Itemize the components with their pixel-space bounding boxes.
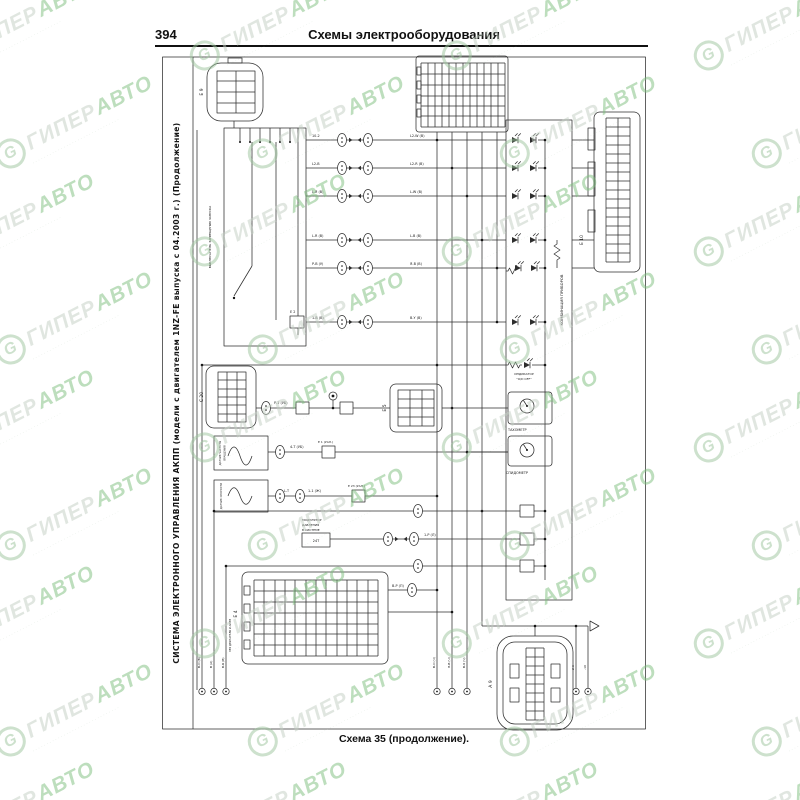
indicator-label: "O/D OFF" <box>516 377 532 381</box>
wire-label: Е 1 (УАЛ.) <box>318 440 333 444</box>
wire-rows: Е 2 10-2 L2-W (В) L2-В L2-R (В) L-Я (В) … <box>290 134 506 329</box>
connector-a9: А 9 2 А -10 <box>488 625 591 730</box>
modulator-label: МОДУЛЯТОР <box>302 518 322 522</box>
wire-label: L2-R (В) <box>410 162 424 166</box>
side-title: СИСТЕМА ЭЛЕКТРОННОГО УПРАВЛЕНИЯ АКПП (мо… <box>172 122 181 663</box>
connector-label: Е 10 <box>579 235 585 245</box>
wire-label: L-Т <box>284 489 290 493</box>
wire-label: В-О (В) <box>197 657 201 668</box>
speedometer-gauge-icon <box>520 443 534 457</box>
connector-e9: Е 9 <box>199 58 263 128</box>
wire-label: L-Я (В) <box>312 190 324 194</box>
wire-label: В (А) <box>209 661 213 668</box>
wire-label: Р-1 (УБ) <box>274 401 288 405</box>
manual-page: 394 Схемы электрооборудования СИСТЕМА ЭЛ… <box>0 0 800 800</box>
wire-label: 10-2 <box>312 134 320 138</box>
inhibit-switch: ВЫКЛЮЧАТЕЛЬ ЗАПРЕЩЕНИЯ ЗАПУСКА <box>197 128 306 690</box>
ecu-label: ЭБУ ДВИГАТЕЛЯ И АКПП <box>228 619 232 652</box>
indicator-label: ИНДИКАТОР <box>514 372 533 376</box>
modulator-label: ДАВЛЕНИЯ <box>302 523 319 527</box>
wire-label: L-W (В) <box>410 190 423 194</box>
wire-label: В-R (В) <box>221 657 225 668</box>
speedometer-label: СПИДОМЕТР <box>506 471 528 475</box>
wire-label: Е 2 <box>290 310 295 314</box>
modulator-label: В СИСТЕМЕ <box>302 528 320 532</box>
instrument-cluster: КОМБИНАЦИЯ ПРИБОРОВ ИНДИКАТОР "O/D OFF" <box>201 120 594 600</box>
wire-label: В-О (Ч) <box>432 657 436 668</box>
wire-label: L-В (В) <box>410 234 422 238</box>
wire-label: В-Р (П) <box>392 584 405 588</box>
connector-e10: Е 10 <box>579 112 640 272</box>
connector-label: Е 5 <box>382 404 388 411</box>
connector-label: Е 9 <box>199 88 205 95</box>
wire-label: L2-В <box>312 162 320 166</box>
modulator-value: 24Т <box>313 539 320 543</box>
wiring-diagram: СИСТЕМА ЭЛЕКТРОННОГО УПРАВЛЕНИЯ АКПП (мо… <box>0 0 800 800</box>
wire-label: 1-1 (Ж) <box>308 489 322 493</box>
wire-label: L2-W (В) <box>410 134 425 138</box>
connector-label: А 9 <box>488 680 494 688</box>
left-terminals: В-О (В) В (А) В-R (В) <box>197 365 229 695</box>
wire-label: Я-В (В) <box>410 262 423 266</box>
bus-verticals: В-О (Ч) Л-В (Ч) В-Я (Ч) <box>432 132 599 695</box>
mid-components: С 20 Р-1 (УБ) Е 5 ДАТЧИК ЧАСТОТЫ ВРАЩЕНИ… <box>199 366 520 573</box>
wire-label: 1-В (В) <box>312 316 324 320</box>
cluster-label: КОМБИНАЦИЯ ПРИБОРОВ <box>559 274 564 325</box>
ground-arrow-icon <box>590 621 599 631</box>
wire-label: L-R (В) <box>312 234 324 238</box>
ecu-connector-e4: Е 4 ЭБУ ДВИГАТЕЛЯ И АКПП В-Р (П) <box>228 572 453 664</box>
sensor-label: ВРАЩЕНИЯ <box>223 445 227 460</box>
wire-label: Е 23 (УАЛ.) <box>348 484 365 488</box>
resistor <box>554 240 560 268</box>
wire-label: Р-В (У) <box>312 262 324 266</box>
tachometer-label: ТАХОМЕТР <box>507 428 527 432</box>
wire-label: Л-В (Ч) <box>447 657 451 668</box>
tachometer-gauge-icon <box>520 399 534 413</box>
sensor-label: ДАТЧИК ЧАСТОТЫ <box>218 440 222 465</box>
wire-label: В-Y (В) <box>410 316 422 320</box>
wire-label: В-Я (Ч) <box>462 657 466 668</box>
diagram-frame: СИСТЕМА ЭЛЕКТРОННОГО УПРАВЛЕНИЯ АКПП (мо… <box>163 57 646 729</box>
switch-label: ВЫКЛЮЧАТЕЛЬ ЗАПРЕЩЕНИЯ ЗАПУСКА <box>208 205 212 268</box>
connector-label: Е 4 <box>233 610 239 617</box>
terminal-label: -10 <box>583 665 587 670</box>
wire-label: 4-Т (УБ) <box>290 445 304 449</box>
wire-label: 1-Р (Л) <box>424 533 436 537</box>
sensor-label: ДАТЧИК СКОРОСТИ <box>219 483 223 509</box>
ecu-connector-top <box>416 56 508 132</box>
